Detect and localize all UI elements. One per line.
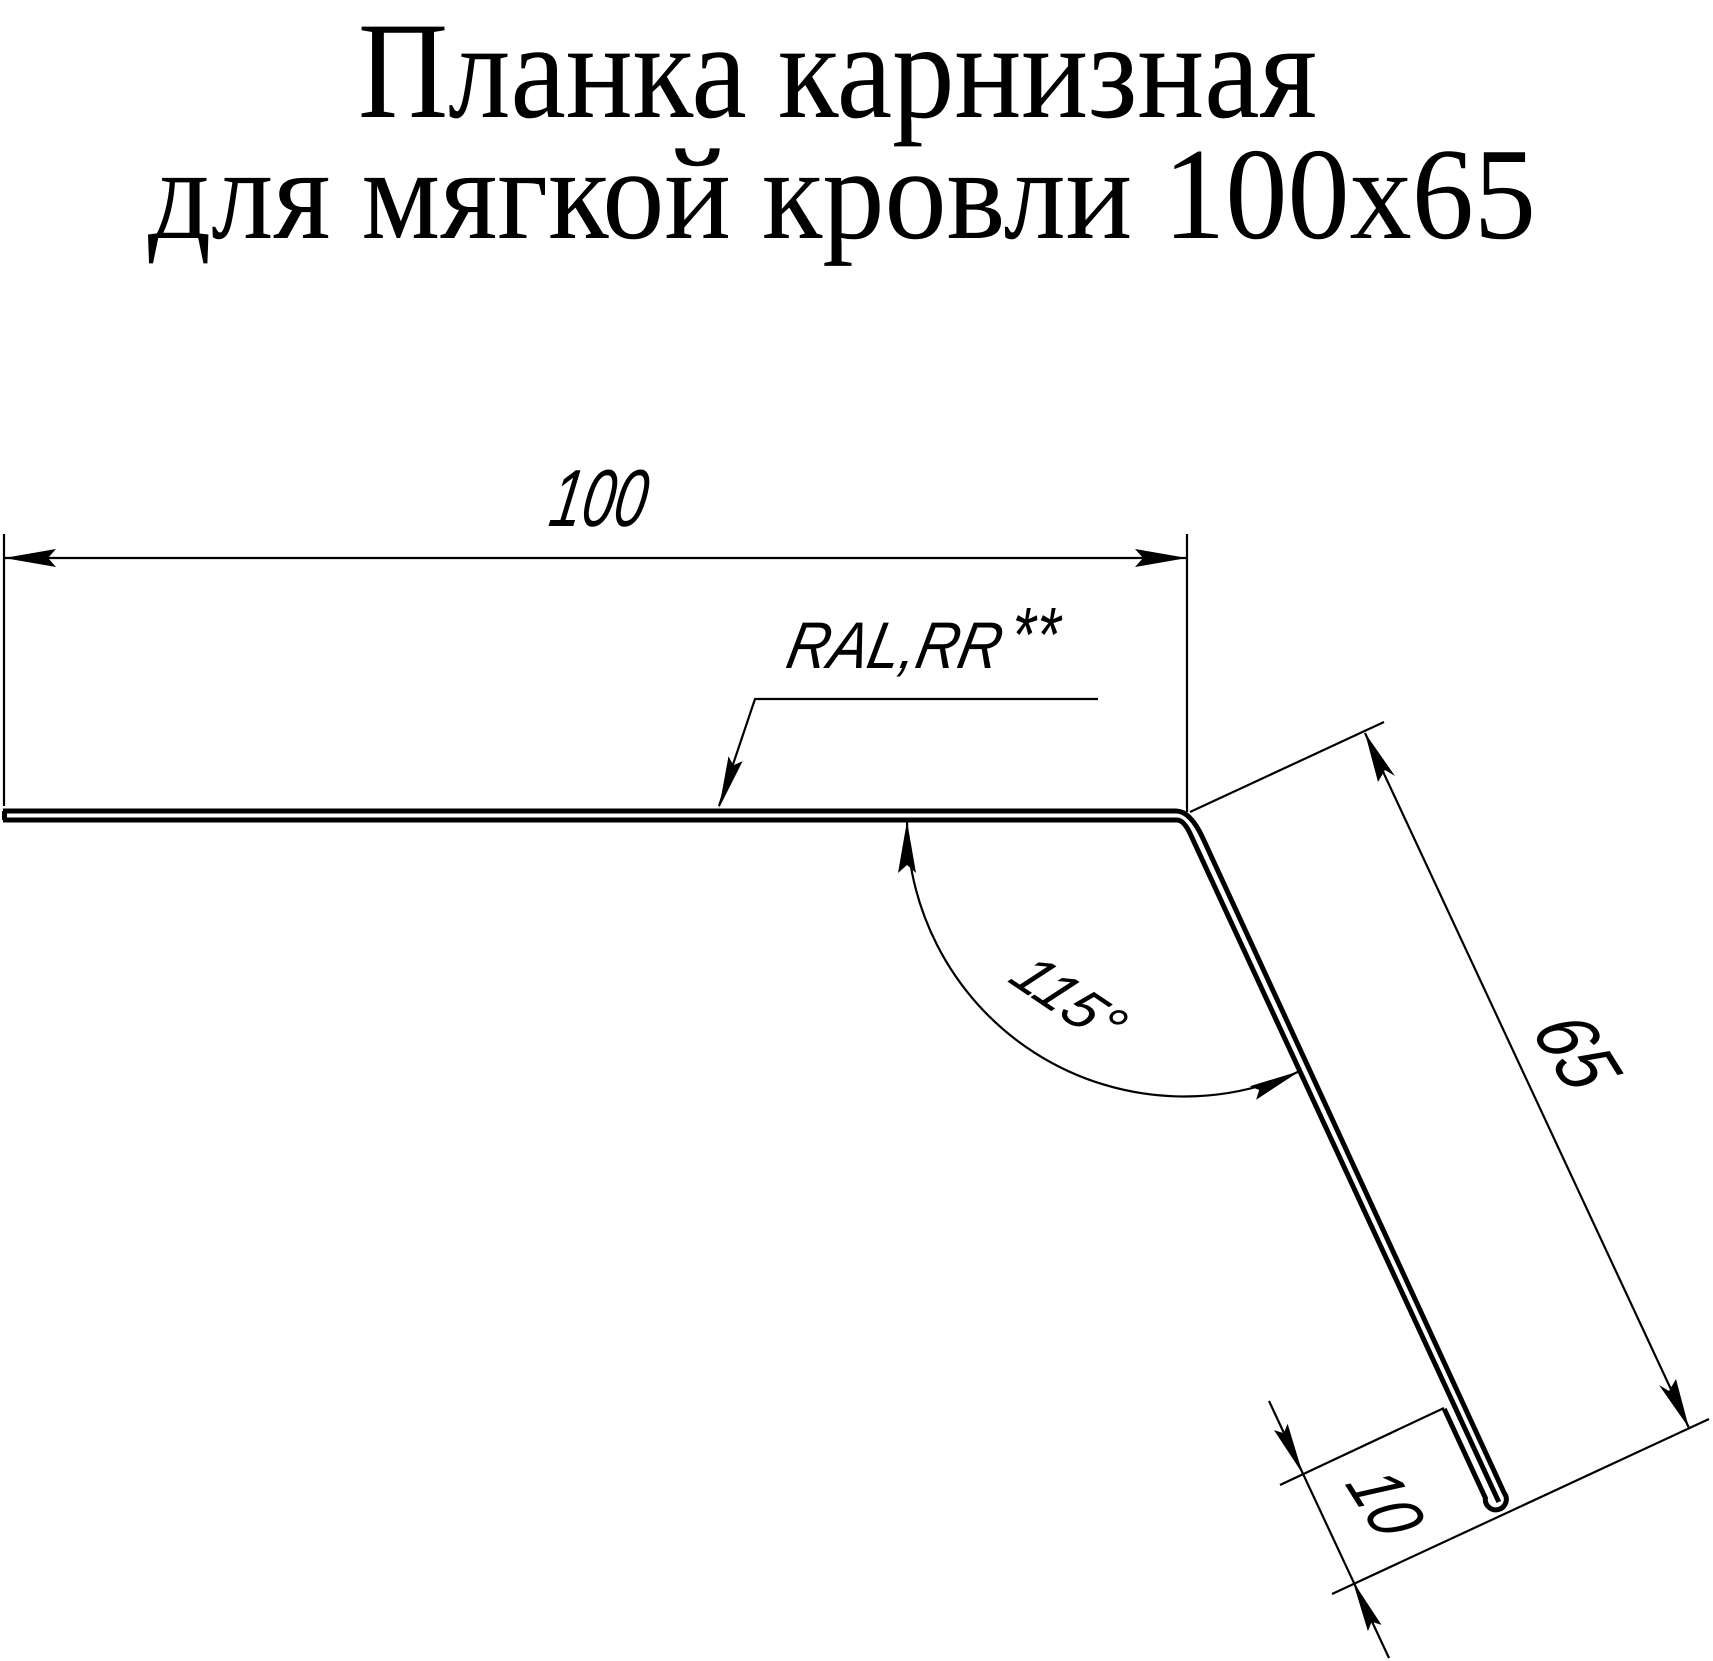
svg-text:100: 100: [544, 454, 655, 544]
svg-text:RAL,RR: RAL,RR: [781, 609, 1009, 682]
svg-text:для мягкой кровли 100х65: для мягкой кровли 100х65: [148, 122, 1536, 267]
